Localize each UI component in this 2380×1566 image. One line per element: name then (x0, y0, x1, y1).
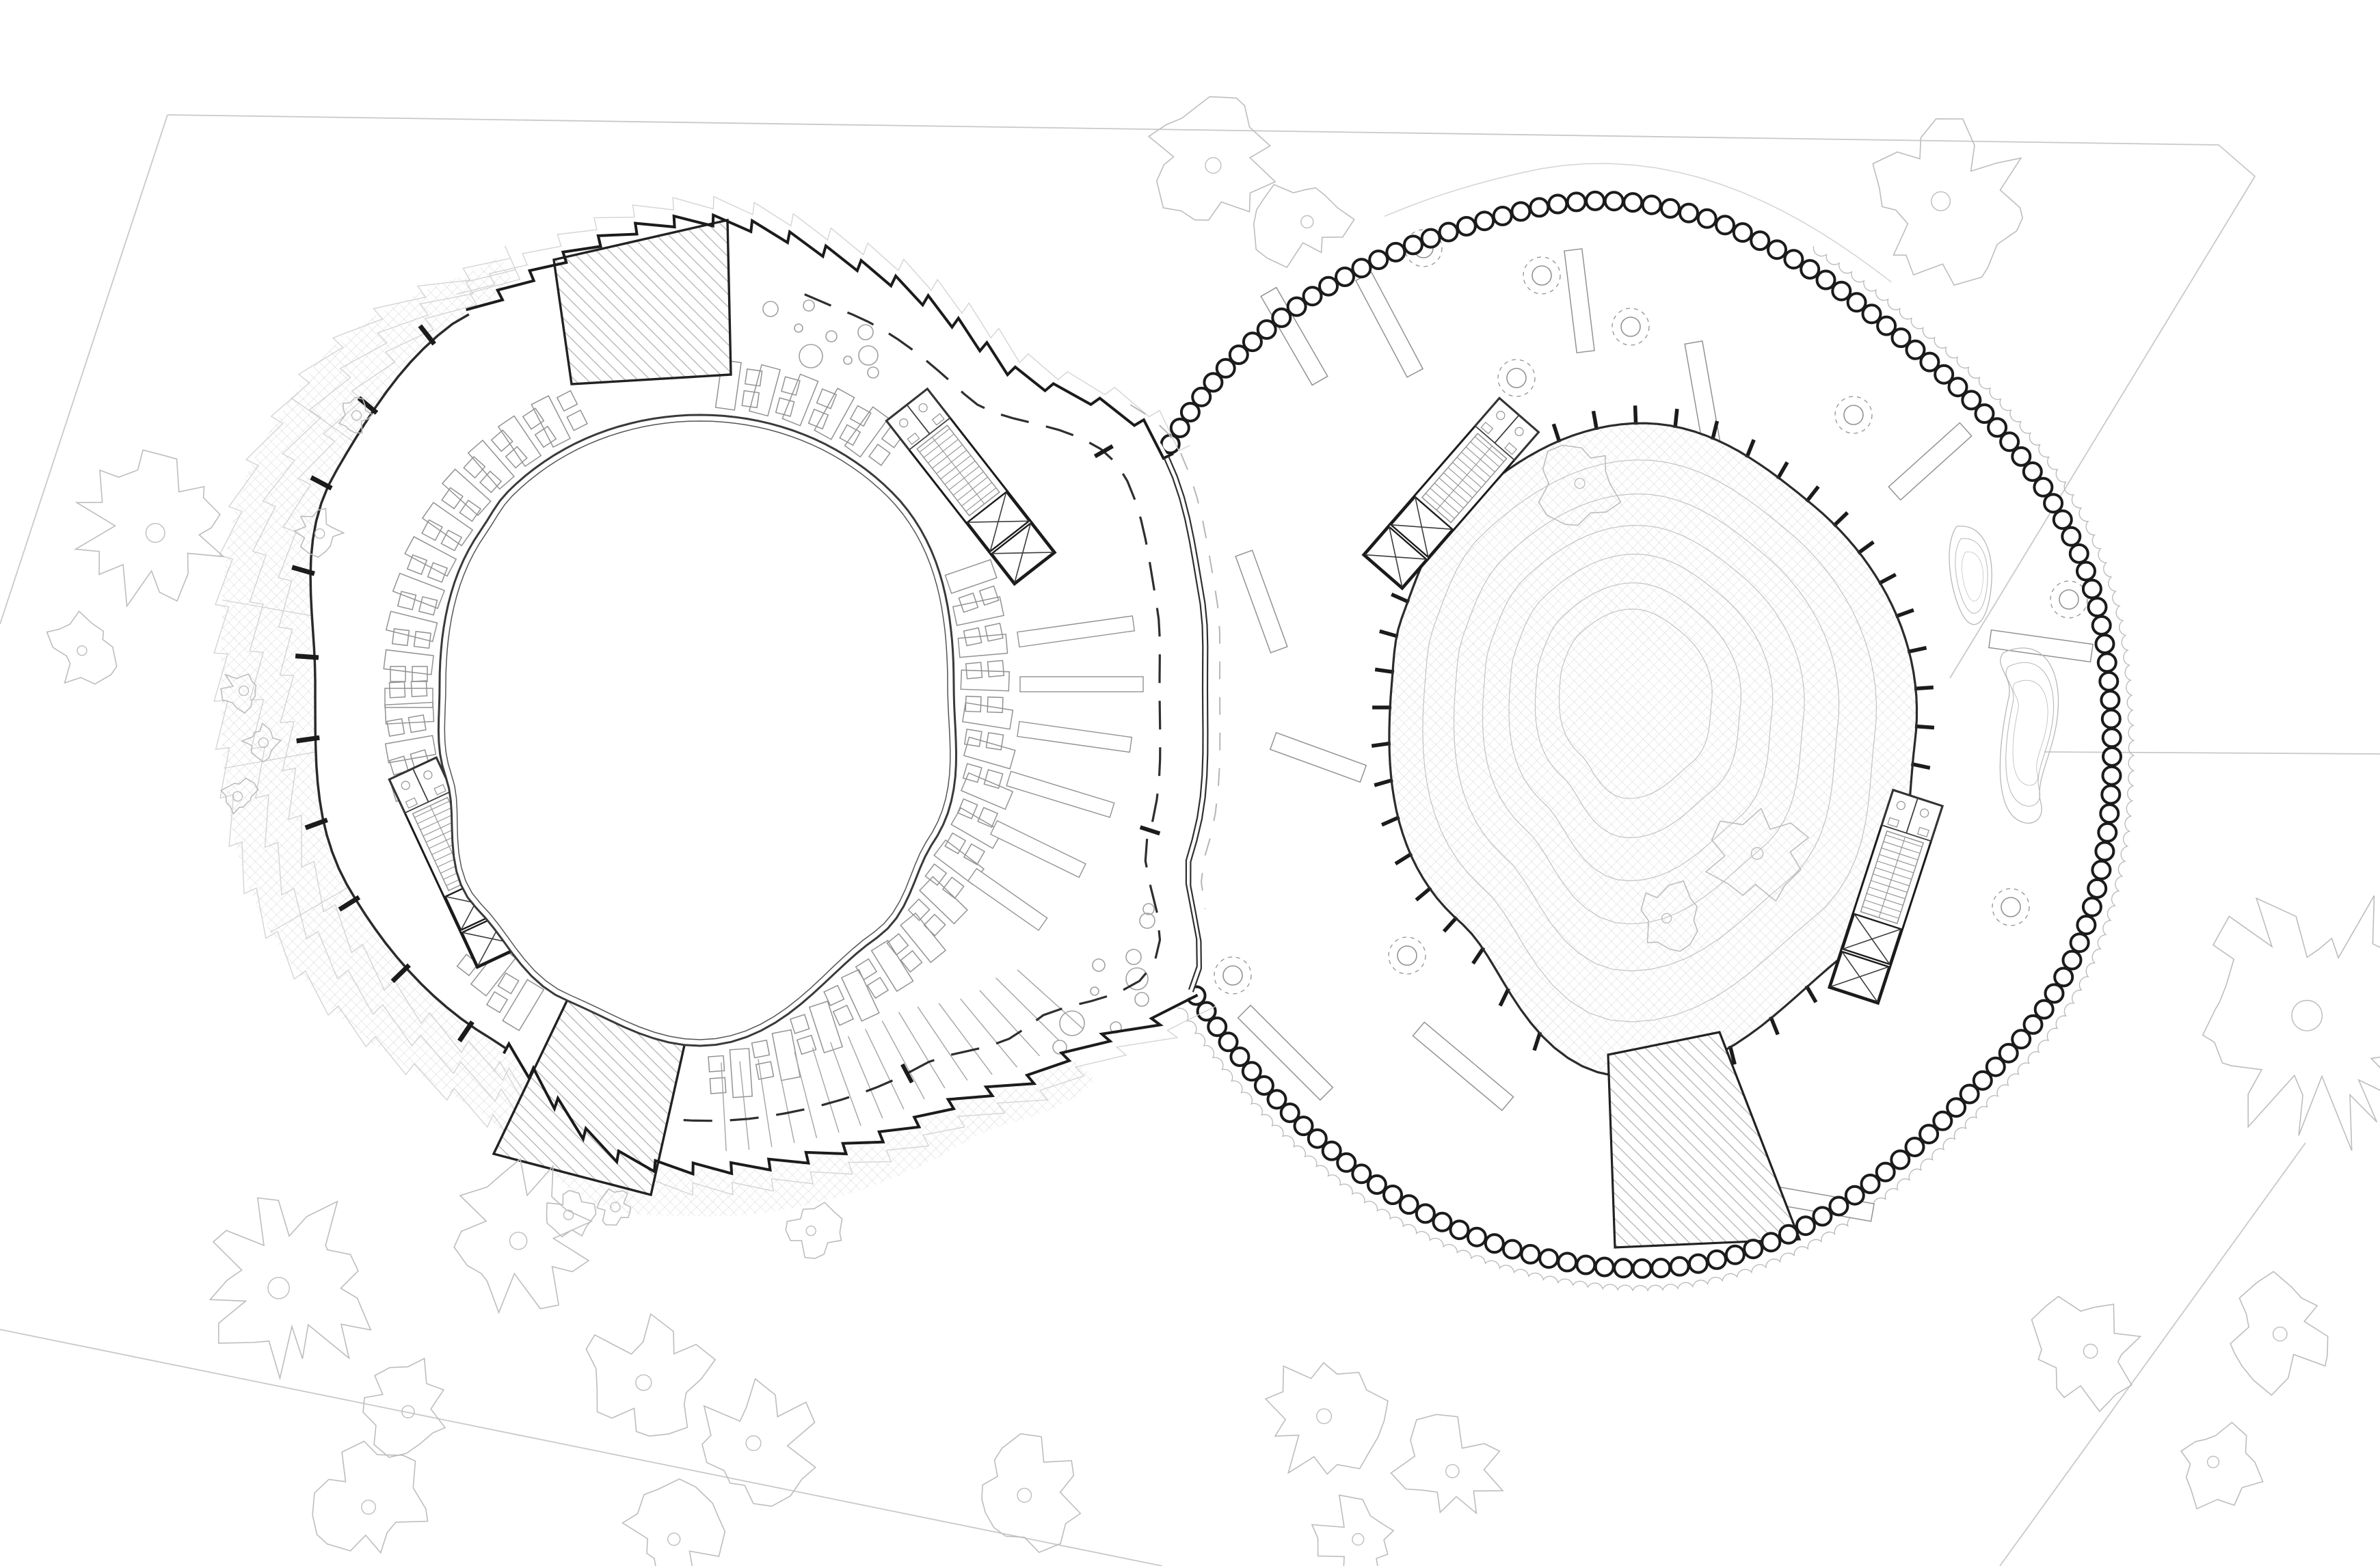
right-ramp-wedge (1608, 1032, 1800, 1247)
bench (1238, 1005, 1333, 1101)
tree-icon (623, 1479, 725, 1566)
bench (1356, 272, 1423, 377)
planted-tree-icon (1507, 368, 1526, 388)
bench (1888, 423, 1971, 500)
tree-icon (1149, 96, 1275, 220)
pond-outline (1949, 526, 1992, 625)
tree-icon (1391, 1414, 1503, 1513)
tree-icon (363, 1358, 445, 1457)
bench (1235, 550, 1287, 653)
tree-icon (312, 1442, 427, 1553)
tree-icon (702, 1379, 816, 1506)
planted-tree-icon (2059, 590, 2078, 609)
tree-icon (210, 1198, 371, 1379)
pond-outline (1962, 552, 1983, 601)
pond-outline (2013, 680, 2048, 785)
pond-outline (2006, 662, 2054, 806)
tree-icon (1312, 1495, 1393, 1566)
tree-icon (2230, 1271, 2328, 1395)
tree-icon (1266, 1363, 1388, 1474)
tree-icon (786, 1202, 842, 1258)
site-plan-svg (0, 0, 2380, 1566)
planted-tree-icon (2001, 897, 2020, 917)
bench (1989, 630, 2093, 662)
tree-icon (2203, 895, 2380, 1150)
tree-icon (586, 1314, 715, 1436)
bench (1564, 249, 1594, 353)
tree-icon (2181, 1422, 2263, 1509)
bench (1270, 733, 1366, 782)
left-building (214, 197, 1220, 1217)
site-plan-canvas (0, 0, 2380, 1566)
planted-tree-icon (1223, 966, 1242, 985)
ponds (1949, 526, 2059, 824)
right-building (1162, 163, 2134, 1291)
tree-icon (1254, 185, 1354, 267)
tree-icon (76, 450, 224, 606)
bench (1413, 1022, 1514, 1110)
planted-tree-icon (1398, 946, 1417, 965)
planted-tree-icon (1844, 405, 1863, 424)
pond-outline (1955, 539, 1988, 613)
top-ramp-wedge (554, 220, 731, 384)
tree-icon (1873, 119, 2022, 285)
planted-tree-icon (1532, 266, 1551, 285)
planter (1020, 677, 1143, 692)
tree-icon (47, 611, 117, 684)
planted-tree-icon (1621, 317, 1640, 336)
